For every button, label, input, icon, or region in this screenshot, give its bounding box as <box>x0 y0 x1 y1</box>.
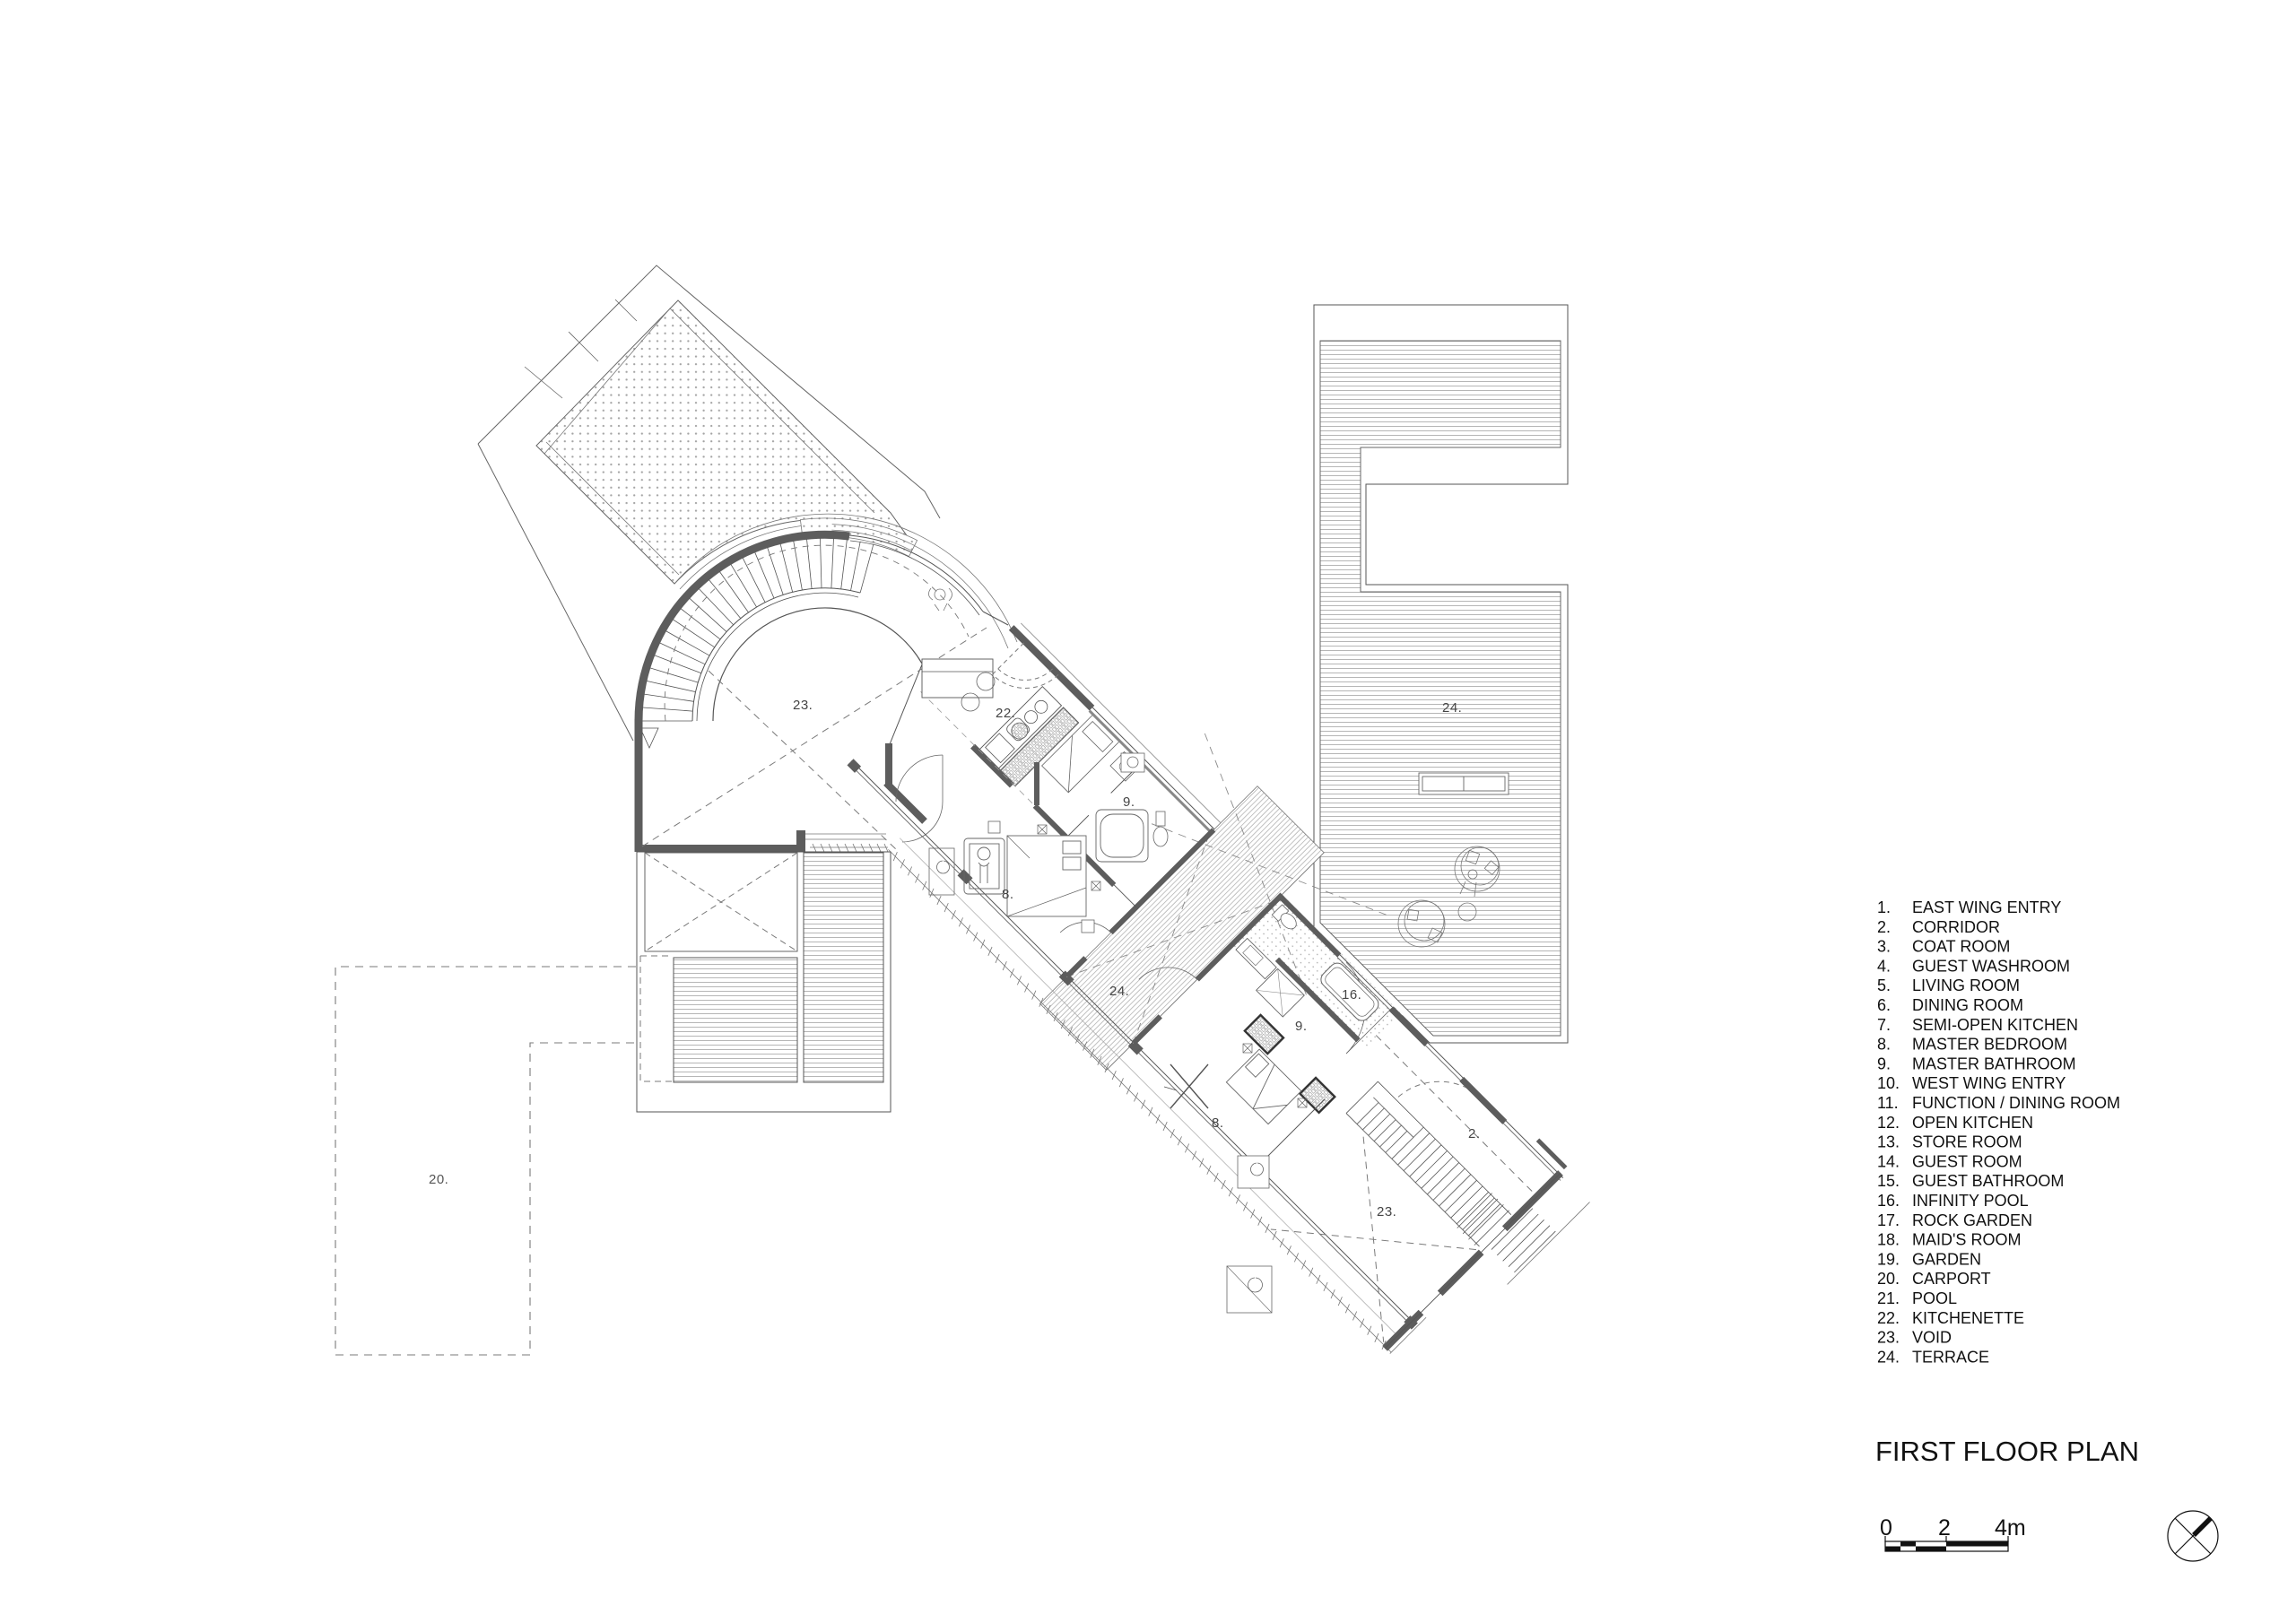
svg-text:8.: 8. <box>1212 1115 1224 1131</box>
svg-text:16.: 16. <box>1877 1192 1900 1210</box>
svg-text:GUEST ROOM: GUEST ROOM <box>1912 1152 2022 1170</box>
svg-text:VOID: VOID <box>1912 1329 1952 1347</box>
svg-text:21.: 21. <box>1877 1289 1900 1307</box>
svg-text:7.: 7. <box>1877 1016 1891 1034</box>
svg-text:FIRST FLOOR PLAN: FIRST FLOOR PLAN <box>1875 1436 2139 1467</box>
svg-text:22.: 22. <box>996 706 1015 721</box>
svg-text:0: 0 <box>1880 1515 1892 1541</box>
svg-text:STORE ROOM: STORE ROOM <box>1912 1133 2022 1151</box>
svg-text:EAST WING ENTRY: EAST WING ENTRY <box>1912 898 2061 916</box>
svg-text:TERRACE: TERRACE <box>1912 1348 1989 1366</box>
svg-text:8.: 8. <box>1002 887 1014 902</box>
svg-text:8.: 8. <box>1877 1036 1891 1054</box>
svg-text:KITCHENETTE: KITCHENETTE <box>1912 1309 2024 1327</box>
svg-text:14.: 14. <box>1877 1152 1900 1170</box>
svg-text:3.: 3. <box>1877 938 1891 956</box>
svg-text:15.: 15. <box>1877 1172 1900 1190</box>
svg-text:DINING ROOM: DINING ROOM <box>1912 996 2023 1014</box>
svg-text:CORRIDOR: CORRIDOR <box>1912 918 2000 936</box>
svg-text:24.: 24. <box>1109 984 1129 999</box>
svg-text:CARPORT: CARPORT <box>1912 1270 1991 1288</box>
svg-text:11.: 11. <box>1877 1094 1899 1112</box>
svg-text:9.: 9. <box>1123 794 1135 810</box>
svg-text:12.: 12. <box>1877 1114 1900 1132</box>
svg-text:SEMI-OPEN KITCHEN: SEMI-OPEN KITCHEN <box>1912 1016 2078 1034</box>
svg-text:20.: 20. <box>1877 1270 1900 1288</box>
svg-text:OPEN KITCHEN: OPEN KITCHEN <box>1912 1114 2033 1132</box>
svg-text:24.: 24. <box>1442 700 1462 716</box>
svg-text:FUNCTION / DINING ROOM: FUNCTION / DINING ROOM <box>1912 1094 2120 1112</box>
svg-text:20.: 20. <box>429 1172 448 1187</box>
svg-text:9.: 9. <box>1877 1055 1891 1072</box>
svg-text:2.: 2. <box>1468 1126 1481 1141</box>
svg-text:POOL: POOL <box>1912 1289 1957 1307</box>
svg-text:17.: 17. <box>1877 1211 1900 1229</box>
svg-text:WEST WING ENTRY: WEST WING ENTRY <box>1912 1074 2066 1092</box>
svg-text:2.: 2. <box>1877 918 1891 936</box>
svg-text:INFINITY POOL: INFINITY POOL <box>1912 1192 2029 1210</box>
svg-text:ROCK GARDEN: ROCK GARDEN <box>1912 1211 2032 1229</box>
svg-text:1.: 1. <box>1877 898 1891 916</box>
svg-text:24.: 24. <box>1877 1348 1900 1366</box>
svg-text:23.: 23. <box>793 698 813 713</box>
svg-text:MASTER BEDROOM: MASTER BEDROOM <box>1912 1036 2067 1054</box>
svg-text:MAID'S ROOM: MAID'S ROOM <box>1912 1231 2021 1249</box>
svg-text:2: 2 <box>1938 1515 1951 1541</box>
svg-text:GUEST WASHROOM: GUEST WASHROOM <box>1912 957 2070 975</box>
svg-text:23.: 23. <box>1877 1329 1900 1347</box>
svg-text:4m: 4m <box>1995 1515 2026 1541</box>
svg-text:19.: 19. <box>1877 1250 1900 1268</box>
svg-text:GARDEN: GARDEN <box>1912 1250 1981 1268</box>
svg-text:LIVING ROOM: LIVING ROOM <box>1912 976 2020 994</box>
svg-text:COAT ROOM: COAT ROOM <box>1912 938 2010 956</box>
svg-text:18.: 18. <box>1877 1231 1900 1249</box>
svg-text:5.: 5. <box>1877 976 1891 994</box>
svg-text:6.: 6. <box>1877 996 1891 1014</box>
svg-text:4.: 4. <box>1877 957 1891 975</box>
svg-text:10.: 10. <box>1877 1074 1900 1092</box>
svg-text:MASTER BATHROOM: MASTER BATHROOM <box>1912 1055 2076 1072</box>
svg-text:GUEST BATHROOM: GUEST BATHROOM <box>1912 1172 2064 1190</box>
svg-text:16.: 16. <box>1342 987 1361 1002</box>
svg-text:9.: 9. <box>1295 1019 1308 1034</box>
svg-text:23.: 23. <box>1377 1204 1396 1219</box>
svg-text:22.: 22. <box>1877 1309 1900 1327</box>
svg-text:13.: 13. <box>1877 1133 1900 1151</box>
